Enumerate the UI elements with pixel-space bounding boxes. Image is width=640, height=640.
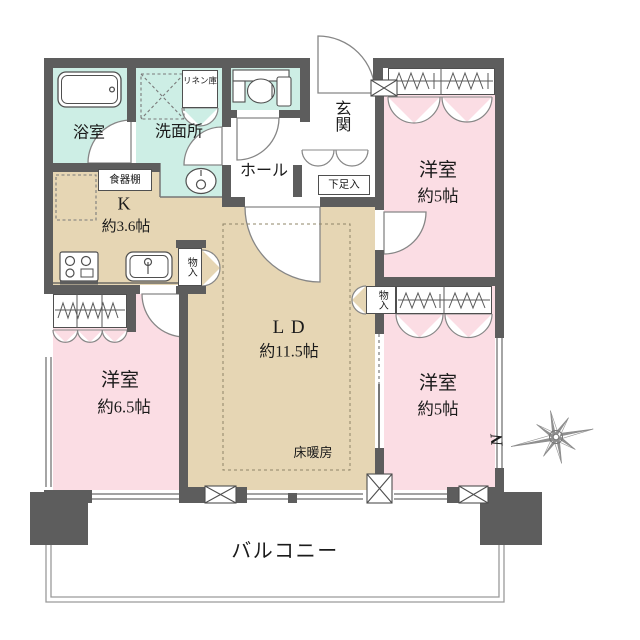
bedroom-bottom-left-size: 約6.5帖 xyxy=(97,398,151,415)
bedroom-bottom-right-size: 約5帖 xyxy=(417,400,458,417)
living-dining-label: LD xyxy=(273,318,312,338)
bedroom-bottom-left-label: 洋室 xyxy=(101,371,139,391)
kitchen-size-label: 約3.6帖 xyxy=(102,220,151,236)
washroom-label: 洗面所 xyxy=(155,125,203,142)
bedroom-top-right-size: 約5帖 xyxy=(417,187,458,204)
cupboard-label: 食器棚 xyxy=(109,174,141,185)
entrance-label: 玄関 xyxy=(332,100,349,132)
floor-plan: 浴室 洗面所 リネン庫 ホール 玄関 下足入 食器棚 K 約3.6帖 LD 約1… xyxy=(0,0,640,640)
compass-north-label: N xyxy=(488,433,507,447)
bedroom-top-right-label: 洋室 xyxy=(419,161,457,181)
compass-icon xyxy=(505,403,598,473)
balcony-label: バルコニー xyxy=(231,542,339,563)
bedroom-bottom-right-label: 洋室 xyxy=(419,374,457,394)
floor-heating-label: 床暖房 xyxy=(293,446,332,460)
hall-label: ホール xyxy=(240,164,288,181)
bath-label: 浴室 xyxy=(73,126,105,143)
linen-closet-label: リネン庫 xyxy=(183,77,217,86)
shaft-x-box xyxy=(205,80,488,503)
living-dining-size-label: 約11.5帖 xyxy=(259,345,318,362)
shoe-cabinet-label: 下足入 xyxy=(328,179,360,190)
kitchen-label: K xyxy=(118,195,131,214)
storage-right-label: 物入 xyxy=(376,290,387,310)
storage-kitchen-label: 物入 xyxy=(185,257,196,277)
